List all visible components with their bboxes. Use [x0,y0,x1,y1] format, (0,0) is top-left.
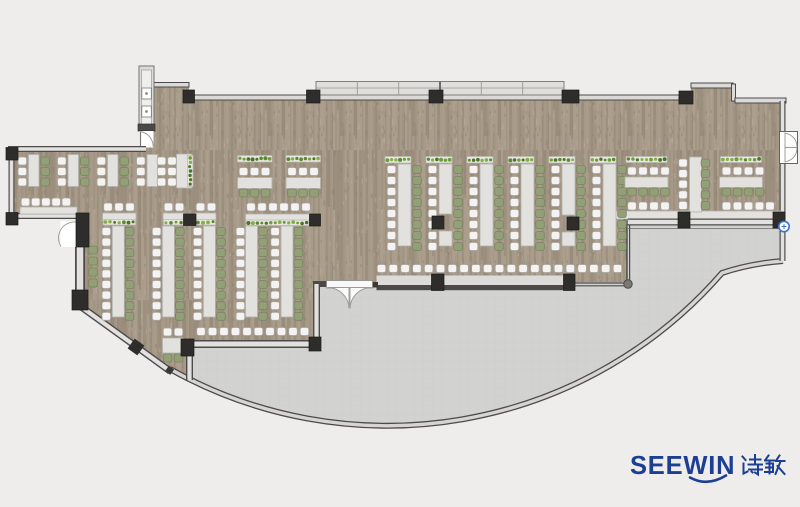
svg-text:SEEWIN: SEEWIN [630,452,735,480]
